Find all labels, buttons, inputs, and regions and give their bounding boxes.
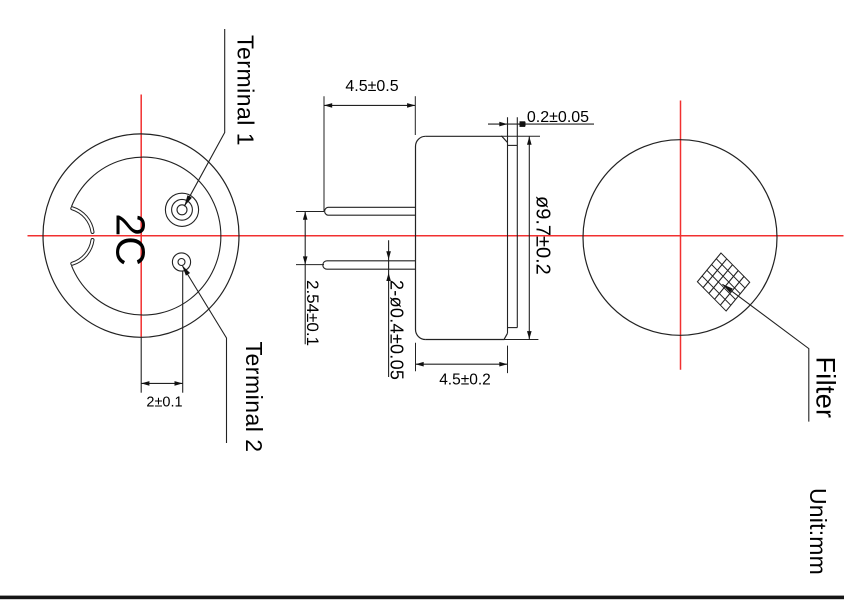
svg-text:Filter: Filter	[811, 357, 841, 419]
svg-text:Unit:mm: Unit:mm	[805, 488, 831, 575]
svg-text:Terminal 2: Terminal 2	[241, 342, 267, 453]
svg-text:ø9.7±0.2: ø9.7±0.2	[532, 196, 554, 275]
svg-text:2C: 2C	[108, 214, 154, 266]
svg-text:4.5±0.2: 4.5±0.2	[439, 372, 491, 389]
svg-text:0.2±0.05: 0.2±0.05	[527, 109, 589, 126]
svg-text:2-ø0.4±0.05: 2-ø0.4±0.05	[387, 280, 407, 380]
svg-text:4.5±0.5: 4.5±0.5	[345, 78, 398, 95]
svg-text:Terminal 1: Terminal 1	[233, 35, 259, 146]
svg-text:2.54±0.1: 2.54±0.1	[303, 280, 322, 346]
svg-text:2±0.1: 2±0.1	[146, 395, 182, 411]
